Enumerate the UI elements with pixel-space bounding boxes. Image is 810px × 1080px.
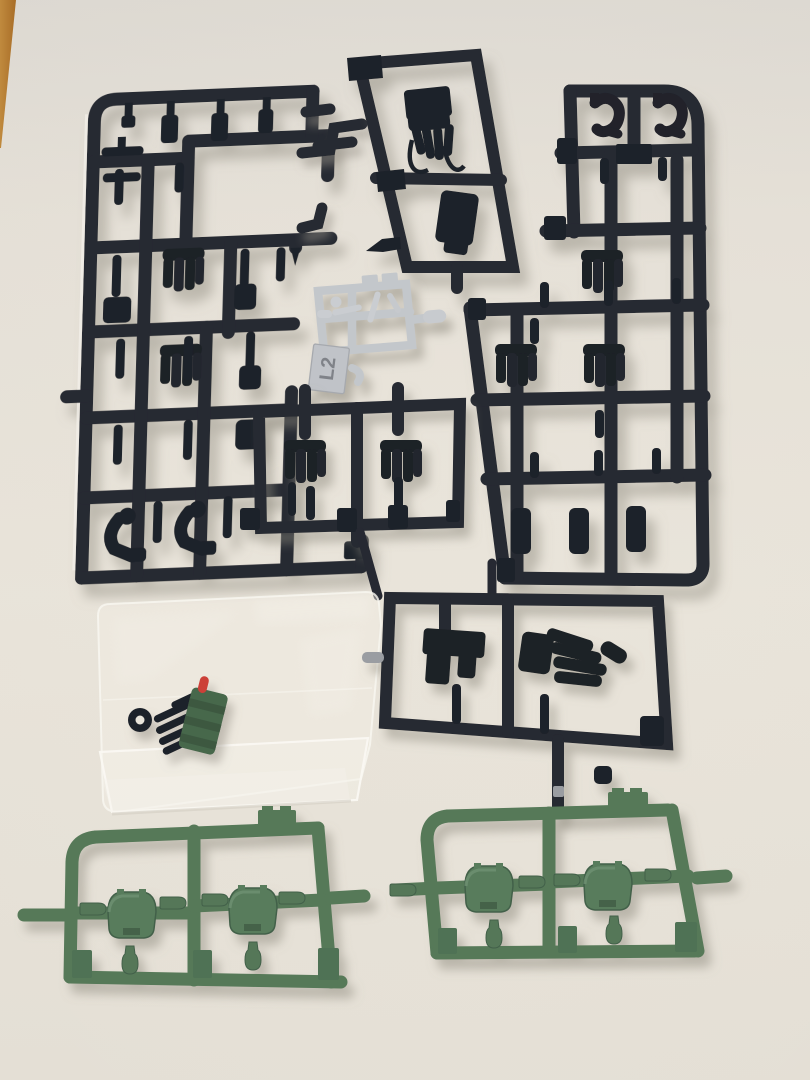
svg-text:L2: L2	[316, 356, 341, 382]
